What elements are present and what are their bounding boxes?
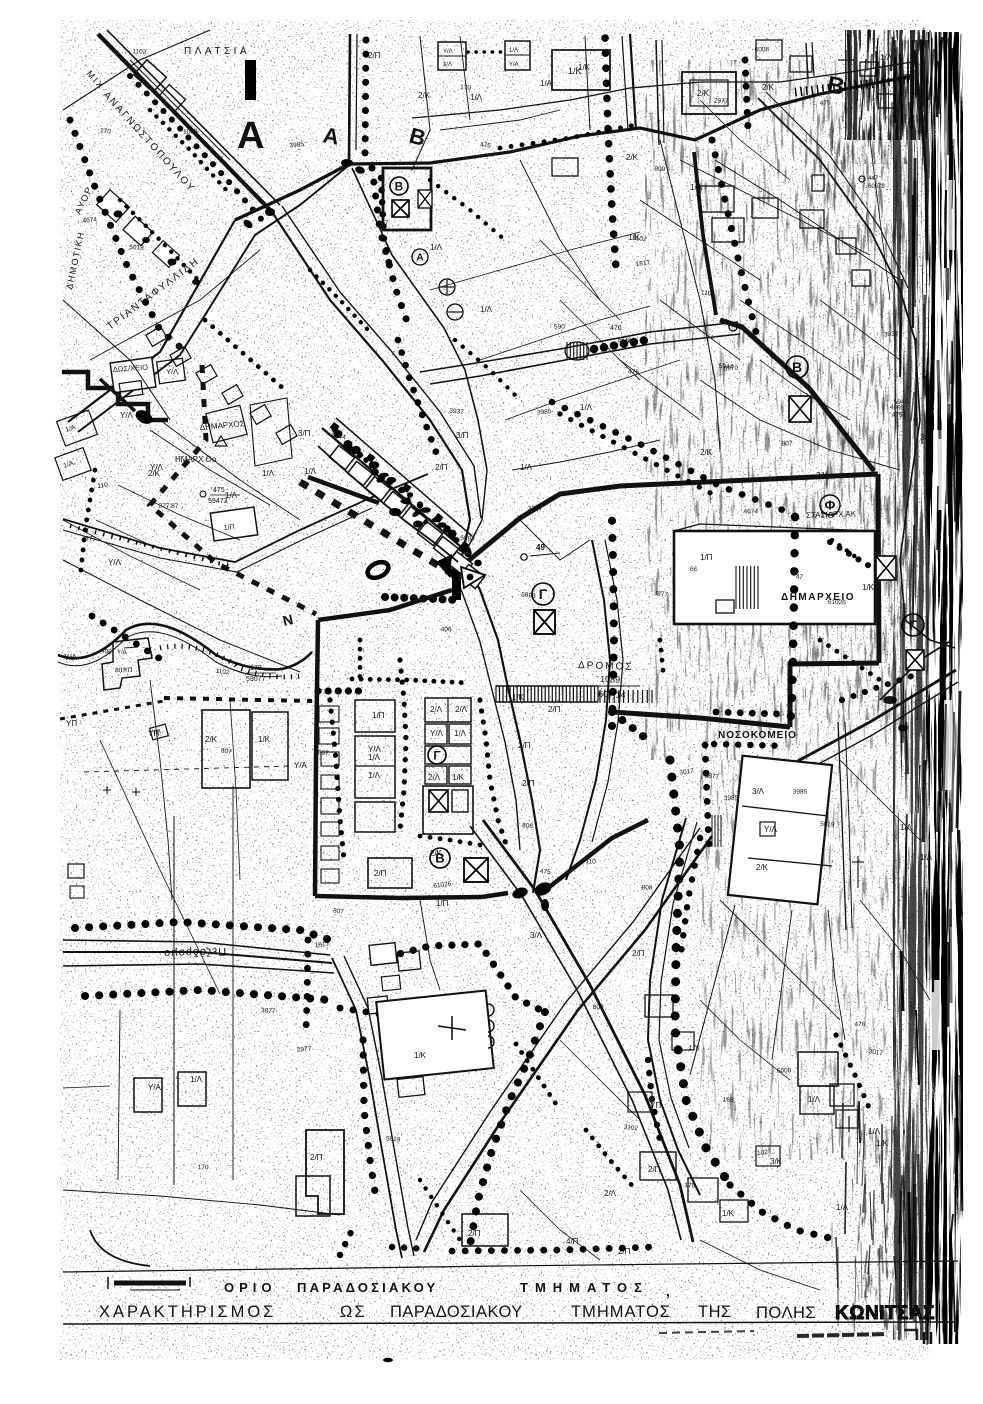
svg-text:Υ/Λ: Υ/Λ [764, 825, 778, 834]
svg-text:476: 476 [480, 142, 492, 150]
svg-text:3877: 3877 [704, 773, 719, 781]
svg-text:809: 809 [593, 1004, 605, 1012]
svg-text:1089: 1089 [600, 674, 620, 685]
svg-text:ΧΑΡΑΚΤΗΡΙΣΜΟΣ: ΧΑΡΑΚΤΗΡΙΣΜΟΣ [99, 1303, 276, 1321]
svg-text:1/Κ: 1/Κ [258, 735, 271, 744]
svg-text:2/Π: 2/Π [374, 869, 387, 878]
svg-text:1/Π: 1/Π [898, 73, 911, 82]
svg-text:3985: 3985 [289, 141, 304, 149]
svg-text:607.14: 607.14 [598, 689, 626, 700]
svg-text:3/Λ: 3/Λ [752, 787, 765, 796]
svg-text:Γ: Γ [539, 586, 548, 602]
svg-text:1/Λ: 1/Λ [620, 338, 633, 347]
svg-text:170: 170 [460, 84, 472, 92]
svg-text:2977: 2977 [297, 1046, 312, 1054]
svg-text:1/Π: 1/Π [372, 711, 385, 720]
svg-text:170: 170 [688, 1044, 700, 1052]
svg-text:1102: 1102 [132, 48, 147, 56]
svg-text:ΚΩΝΙΤΣΑΣ: ΚΩΝΙΤΣΑΣ [835, 1303, 935, 1324]
svg-text:807: 807 [115, 667, 126, 674]
svg-text:ΥΠ: ΥΠ [66, 719, 77, 728]
svg-text:1817: 1817 [315, 941, 330, 949]
svg-text:476: 476 [628, 368, 640, 376]
svg-text:1/Λ: 1/Λ [880, 53, 893, 62]
svg-text:1/Λ: 1/Λ [580, 403, 593, 412]
svg-text:2/Π: 2/Π [548, 705, 561, 714]
svg-text:Υ/Λ: Υ/Λ [509, 62, 519, 68]
svg-text:2/Λ: 2/Λ [604, 1189, 617, 1198]
svg-text:ΔΡΟΜΟΣ: ΔΡΟΜΟΣ [578, 660, 634, 673]
svg-text:1/Κ: 1/Κ [414, 1051, 427, 1060]
svg-text:1/Κ: 1/Κ [862, 583, 875, 592]
svg-text:406: 406 [101, 648, 113, 656]
svg-text:1/Λ: 1/Λ [470, 93, 483, 102]
svg-text:1/Π: 1/Π [223, 524, 235, 532]
svg-text:Υ/Λ: Υ/Λ [64, 653, 78, 662]
svg-text:1003: 1003 [183, 128, 198, 136]
svg-text:2/Κ: 2/Κ [816, 471, 829, 480]
svg-text:3/Λ: 3/Λ [530, 931, 543, 940]
svg-text:6008: 6008 [777, 1067, 792, 1074]
svg-text:2/Κ: 2/Κ [205, 735, 218, 744]
svg-text:3985: 3985 [793, 789, 808, 796]
svg-text:Γ: Γ [433, 748, 441, 762]
svg-text:2/Π: 2/Π [368, 51, 381, 60]
svg-text:277.87: 277.87 [158, 503, 178, 510]
svg-text:2/Κ: 2/Κ [700, 448, 713, 457]
svg-text:807: 807 [782, 440, 794, 448]
svg-text:,: , [666, 1283, 670, 1299]
svg-text:47: 47 [381, 219, 389, 226]
svg-text:110: 110 [701, 289, 713, 297]
svg-text:2/Π: 2/Π [468, 1229, 481, 1238]
svg-text:1/Α: 1/Α [540, 79, 553, 88]
svg-text:Α: Α [237, 115, 264, 157]
svg-text:1/Κ: 1/Κ [452, 773, 465, 782]
svg-text:1/Λ: 1/Λ [836, 1203, 849, 1212]
svg-text:178: 178 [250, 665, 262, 672]
svg-text:1/Λ: 1/Λ [509, 48, 518, 54]
svg-text:3/Π: 3/Π [920, 433, 933, 442]
svg-text:Υ/Λ: Υ/Λ [430, 729, 444, 738]
svg-text:475: 475 [539, 868, 551, 876]
svg-text:807: 807 [220, 747, 232, 755]
svg-text:ΥΠ: ΥΠ [650, 1101, 661, 1110]
svg-text:ΟΡΙΟ: ΟΡΙΟ [224, 1280, 277, 1295]
svg-text:Α: Α [416, 253, 423, 264]
svg-text:Γ: Γ [909, 617, 918, 633]
svg-text:110: 110 [585, 858, 596, 865]
svg-text:590: 590 [554, 323, 565, 330]
svg-text:178: 178 [684, 1182, 695, 1189]
svg-text:2/Π: 2/Π [522, 779, 535, 788]
svg-text:2/Π: 2/Π [648, 1165, 661, 1174]
svg-text:5944: 5944 [719, 363, 734, 371]
svg-text:1/Λ: 1/Λ [368, 771, 381, 780]
svg-text:ΥΠ: ΥΠ [148, 729, 159, 738]
svg-text:3/Π: 3/Π [456, 431, 469, 440]
svg-text:1/Λ: 1/Λ [868, 1127, 881, 1136]
svg-text:5893: 5893 [460, 535, 475, 543]
svg-text:2/Λ: 2/Λ [428, 773, 441, 782]
svg-text:1/Λ: 1/Λ [520, 463, 533, 472]
svg-text:475: 475 [892, 411, 903, 418]
svg-text:476: 476 [854, 1021, 865, 1028]
svg-text:1/Λ: 1/Λ [304, 467, 317, 476]
svg-text:5944: 5944 [331, 433, 346, 441]
svg-text:ΠΑΡΑΔΟΣΙΑΚΟΥ: ΠΑΡΑΔΟΣΙΑΚΟΥ [390, 1303, 523, 1321]
svg-text:168: 168 [723, 1097, 734, 1104]
svg-text:1/Κ: 1/Κ [578, 63, 591, 72]
svg-text:809: 809 [654, 166, 666, 174]
svg-text:1/Λ: 1/Λ [190, 1075, 203, 1084]
svg-text:Β: Β [395, 179, 404, 193]
svg-text:406: 406 [441, 626, 452, 633]
svg-text:2/Π: 2/Π [310, 1153, 323, 1162]
svg-text:110: 110 [97, 482, 108, 490]
svg-text:475: 475 [820, 100, 832, 108]
svg-text:4674: 4674 [743, 508, 758, 515]
svg-text:60678: 60678 [868, 184, 885, 190]
svg-text:Πεζόδρομο: Πεζόδρομο [163, 945, 226, 959]
svg-text:2/Π: 2/Π [435, 463, 448, 472]
svg-text:3707: 3707 [527, 505, 542, 513]
svg-text:61026: 61026 [828, 599, 847, 607]
svg-text:3/Π: 3/Π [298, 429, 311, 438]
svg-text:4/Π: 4/Π [566, 1237, 579, 1246]
svg-text:5944: 5944 [894, 398, 909, 406]
svg-text:Β: Β [792, 359, 802, 375]
svg-text:1/Κ: 1/Κ [876, 1139, 889, 1148]
svg-text:2/Κ: 2/Κ [756, 863, 769, 872]
svg-text:Υ/Α: Υ/Α [294, 761, 308, 770]
svg-text:ΩΣ: ΩΣ [340, 1303, 367, 1321]
svg-text:2977: 2977 [714, 97, 729, 105]
svg-text:5019: 5019 [129, 244, 144, 251]
svg-text:1/Α: 1/Α [690, 183, 703, 192]
svg-text:ΤΗΣ: ΤΗΣ [698, 1303, 732, 1321]
svg-text:Υ/Λ: Υ/Λ [120, 411, 134, 420]
svg-text:1/Κ: 1/Κ [512, 693, 525, 702]
svg-text:3877: 3877 [261, 1007, 276, 1015]
svg-text:2/Π: 2/Π [632, 949, 645, 958]
svg-text:ΤΜΗΜΑΤΟΣ: ΤΜΗΜΑΤΟΣ [520, 1280, 649, 1295]
svg-text:ΠΟΛΗΣ: ΠΟΛΗΣ [756, 1304, 816, 1322]
svg-text:2/Λ: 2/Λ [455, 705, 468, 714]
svg-text:2/Κ: 2/Κ [626, 153, 639, 162]
svg-text:2/Κ: 2/Κ [762, 83, 775, 92]
svg-text:6008: 6008 [755, 46, 770, 53]
svg-text:3937: 3937 [884, 330, 899, 338]
svg-text:1/Λ: 1/Λ [454, 729, 467, 738]
svg-text:1/Λ: 1/Λ [368, 753, 381, 762]
svg-text:1/Λ: 1/Λ [262, 469, 275, 478]
svg-text:Υ/Λ: Υ/Λ [166, 367, 178, 376]
svg-text:ΠΑΡΑΔΟΣΙΑΚΟΥ: ΠΑΡΑΔΟΣΙΑΚΟΥ [297, 1280, 438, 1295]
svg-text:66: 66 [690, 566, 698, 574]
svg-text:1/Λ: 1/Λ [808, 1095, 821, 1104]
svg-text:Υ/Α: Υ/Α [117, 650, 127, 656]
svg-text:1102: 1102 [754, 1149, 769, 1157]
svg-text:808: 808 [522, 822, 534, 830]
svg-text:1/Λ: 1/Λ [225, 491, 238, 500]
svg-text:2/Κ: 2/Κ [430, 849, 443, 858]
svg-text:1/Λ: 1/Λ [920, 853, 933, 862]
svg-text:807: 807 [318, 749, 330, 757]
svg-text:475: 475 [213, 487, 225, 494]
svg-text:2/Κ: 2/Κ [148, 469, 161, 478]
svg-text:808: 808 [642, 885, 653, 892]
svg-text:170: 170 [198, 1164, 209, 1171]
svg-text:2/Λ: 2/Λ [430, 705, 443, 714]
svg-text:5019: 5019 [386, 1135, 401, 1143]
svg-text:Υ/Λ: Υ/Λ [108, 558, 122, 567]
svg-text:ΠΟ: ΠΟ [822, 511, 834, 520]
svg-text:1/Π: 1/Π [700, 553, 713, 562]
svg-text:1/Λ: 1/Λ [430, 243, 443, 252]
svg-text:5019: 5019 [820, 821, 835, 829]
svg-text:1/Λ: 1/Λ [443, 62, 452, 68]
svg-text:ΠΛΑΤΣΙΑ: ΠΛΑΤΣΙΑ [184, 46, 250, 57]
svg-text:2/Κ: 2/Κ [697, 89, 710, 98]
svg-text:807: 807 [333, 907, 345, 915]
svg-text:1/Κ: 1/Κ [722, 1209, 735, 1218]
svg-text:ΗΜΑΡΧ Οο: ΗΜΑΡΧ Οο [175, 455, 217, 464]
svg-text:1/Π: 1/Π [436, 899, 449, 908]
svg-text:3/Κ: 3/Κ [770, 1157, 783, 1166]
svg-text:2/Κ: 2/Κ [418, 91, 431, 100]
svg-text:47: 47 [795, 573, 803, 581]
svg-text:1/Λ: 1/Λ [480, 305, 493, 314]
svg-text:ΤΜΗΜΑΤΟΣ: ΤΜΗΜΑΤΟΣ [571, 1303, 671, 1321]
svg-text:ΝΟΣΟΚΟΜΕΙΟ: ΝΟΣΟΚΟΜΕΙΟ [718, 730, 797, 741]
svg-text:Υ/Λ: Υ/Λ [443, 49, 453, 55]
svg-text:447: 447 [868, 176, 879, 182]
svg-text:3985: 3985 [724, 795, 739, 802]
svg-text:2/Π: 2/Π [518, 741, 531, 750]
svg-text:3937: 3937 [449, 408, 464, 416]
svg-text:476: 476 [610, 325, 622, 332]
svg-text:1/Λ: 1/Λ [900, 823, 913, 832]
svg-text:Υ/Α: Υ/Α [148, 1083, 162, 1092]
svg-text:59077: 59077 [246, 676, 266, 683]
